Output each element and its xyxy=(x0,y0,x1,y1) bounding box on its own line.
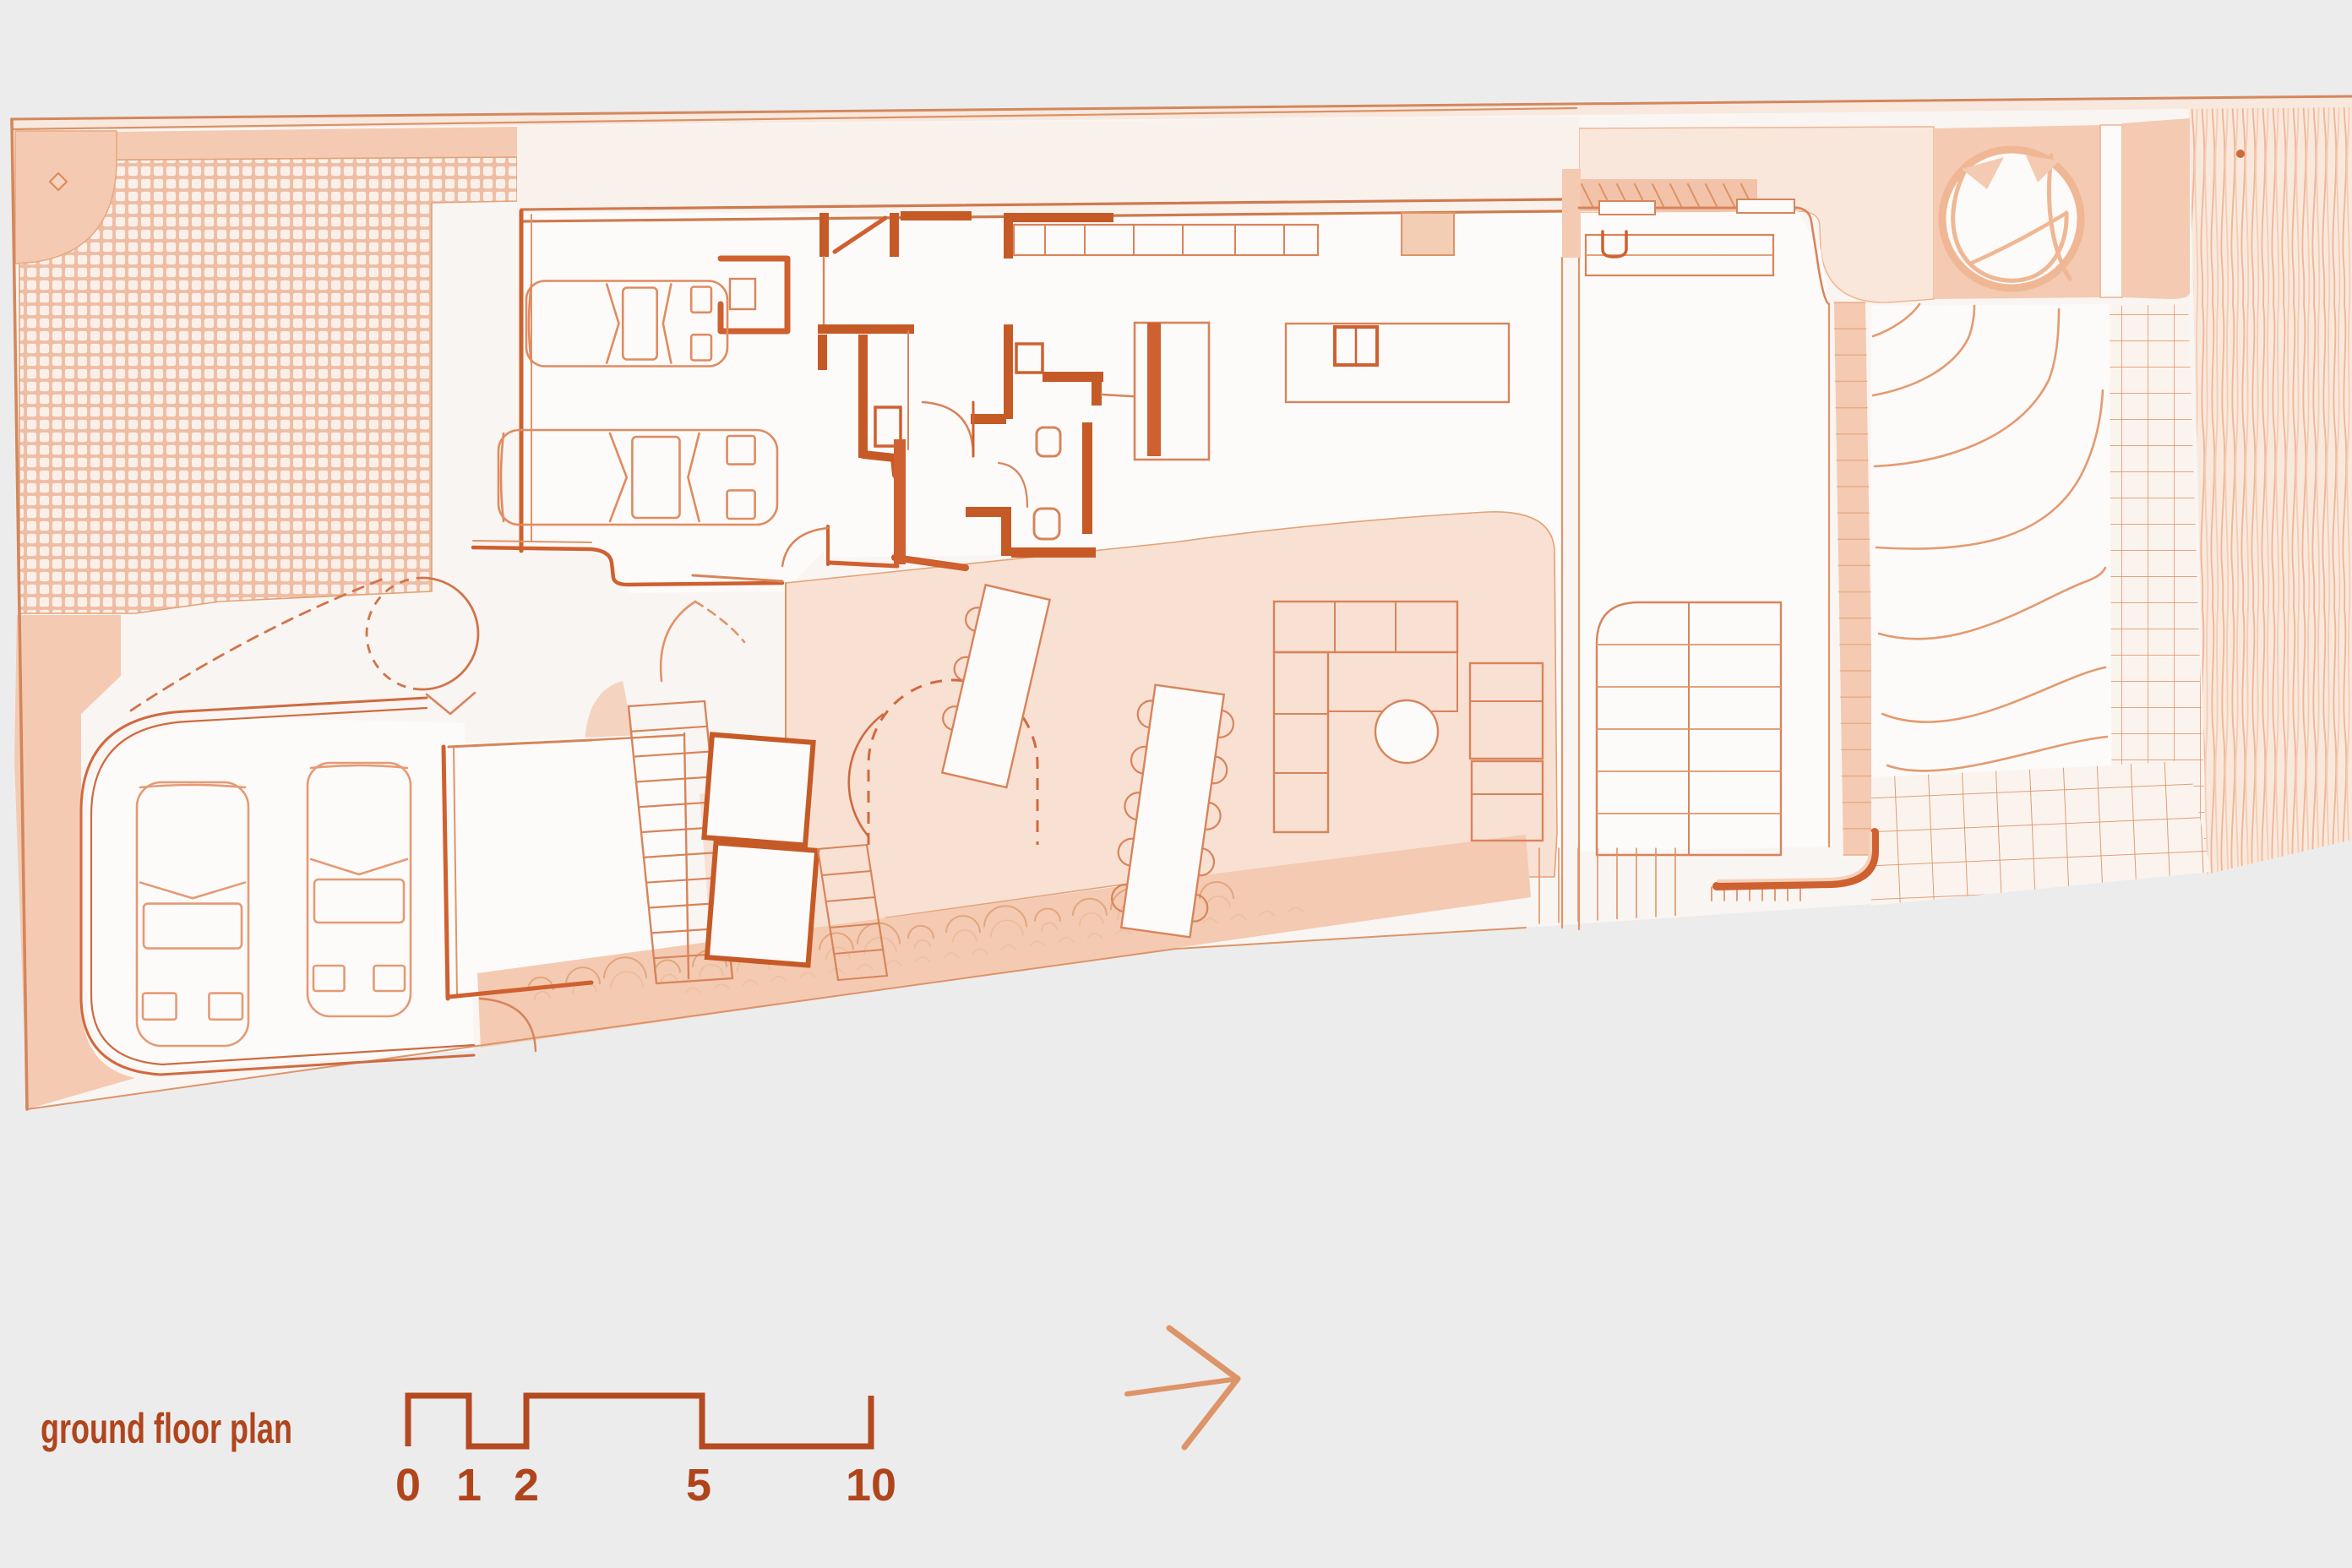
svg-text:1: 1 xyxy=(456,1460,482,1511)
svg-text:10: 10 xyxy=(846,1460,896,1511)
svg-text:2: 2 xyxy=(514,1460,539,1511)
svg-text:ground floor plan: ground floor plan xyxy=(41,1405,292,1452)
svg-text:5: 5 xyxy=(686,1460,711,1511)
svg-text:0: 0 xyxy=(395,1460,421,1511)
